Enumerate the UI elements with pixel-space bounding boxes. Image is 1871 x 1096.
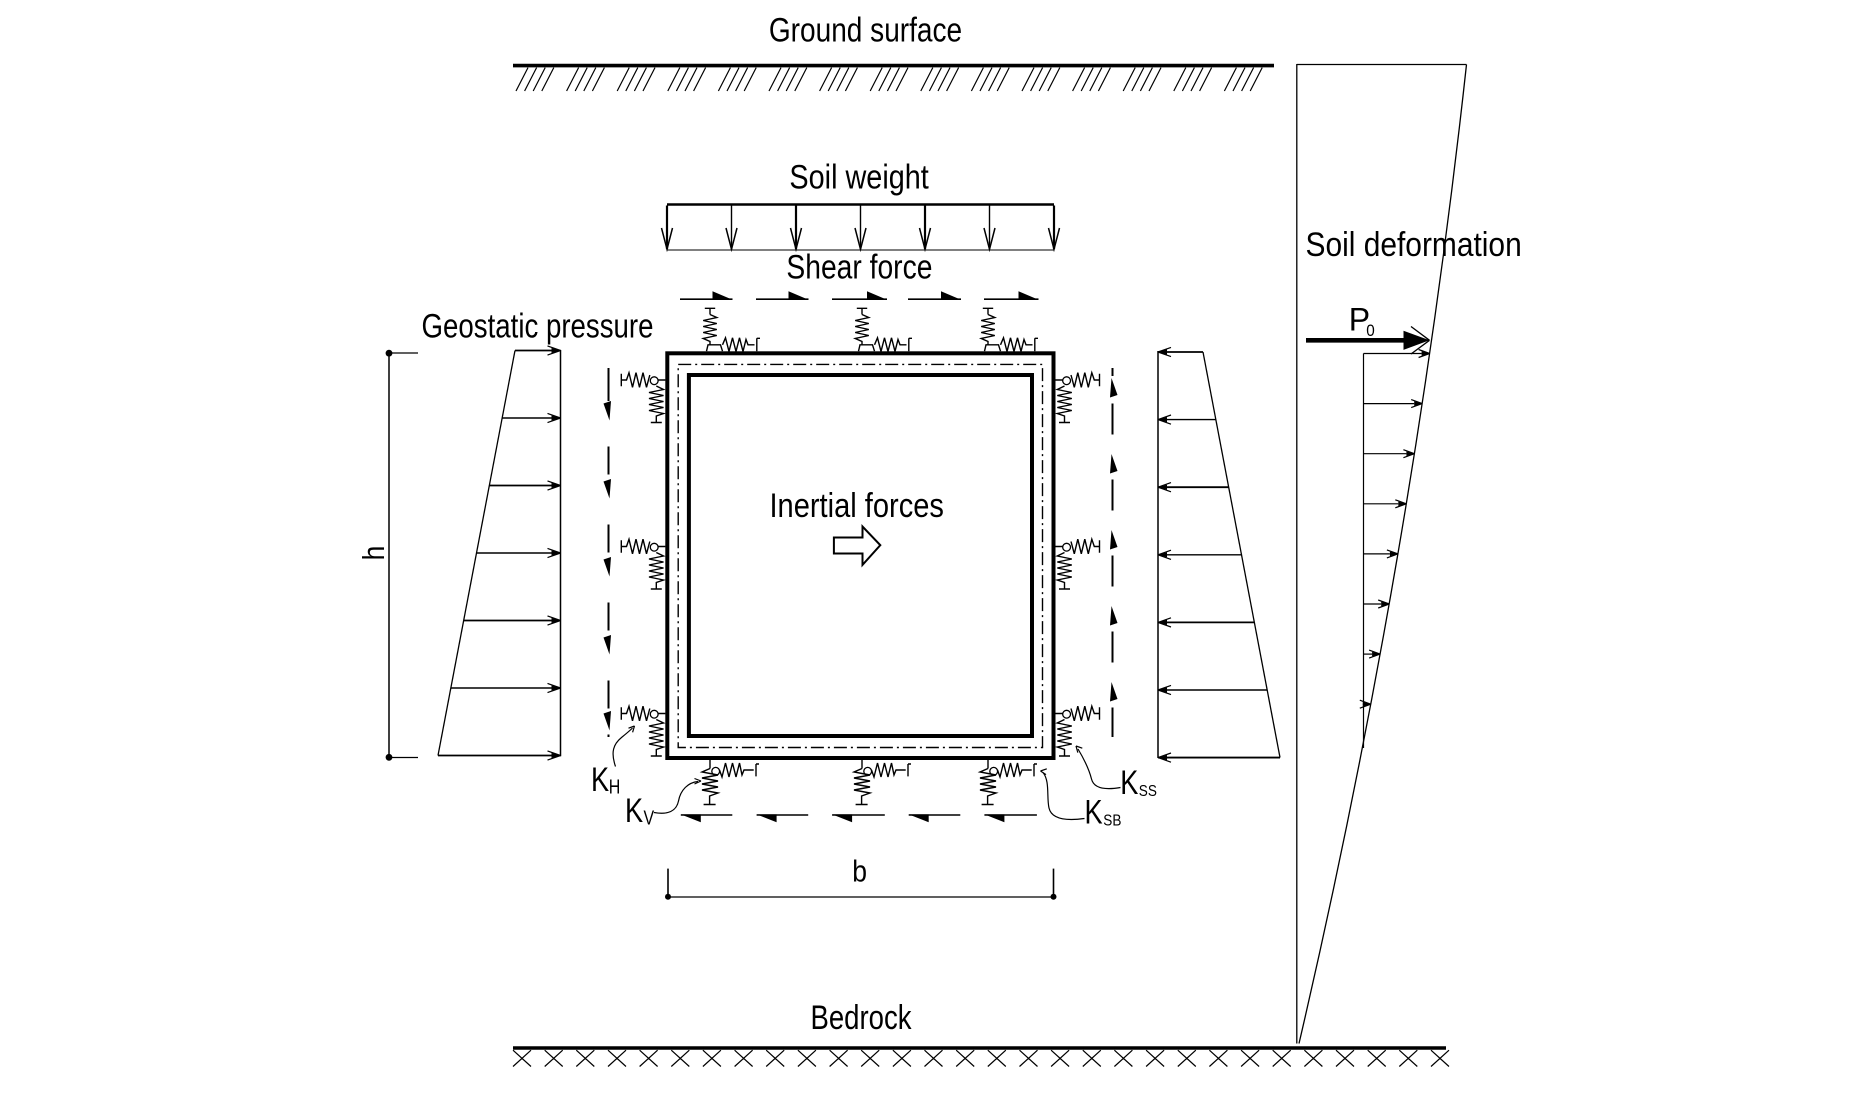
svg-text:K: K — [1085, 792, 1104, 831]
svg-text:h: h — [357, 546, 391, 561]
svg-text:SS: SS — [1139, 783, 1157, 800]
svg-text:Soil deformation: Soil deformation — [1305, 225, 1521, 263]
svg-text:Geostatic pressure: Geostatic pressure — [422, 307, 654, 345]
svg-text:K: K — [1120, 763, 1139, 802]
svg-text:K: K — [591, 760, 610, 799]
svg-text:0: 0 — [1366, 321, 1375, 340]
svg-text:Inertial forces: Inertial forces — [769, 486, 943, 525]
svg-text:Shear force: Shear force — [786, 248, 932, 286]
svg-text:H: H — [609, 776, 621, 798]
svg-text:Ground surface: Ground surface — [769, 11, 962, 49]
svg-text:b: b — [852, 855, 867, 889]
svg-text:V: V — [644, 807, 655, 829]
svg-text:Soil weight: Soil weight — [789, 157, 929, 196]
svg-text:SB: SB — [1103, 812, 1121, 829]
svg-text:Bedrock: Bedrock — [811, 998, 912, 1036]
svg-text:K: K — [625, 791, 644, 830]
